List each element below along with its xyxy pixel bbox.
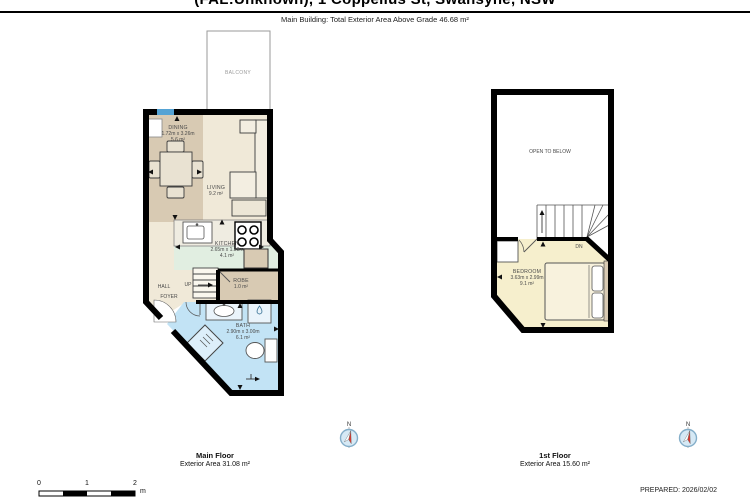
dining-label: DINING 1.72m x 3.26m 5.6 m² — [161, 126, 194, 143]
tv-bench-icon — [232, 200, 266, 216]
robe-label: ROBE 1.0 m² — [233, 279, 249, 291]
stairs-down — [537, 205, 611, 239]
floorplan-drawing: N N — [0, 0, 750, 500]
prepared-date: PREPARED: 2026/02/02 — [640, 487, 717, 494]
fridge-icon — [244, 249, 268, 268]
bed-icon — [545, 261, 609, 321]
bedroom-label: BEDROOM 3.63m x 2.99m 9.1 m² — [510, 270, 543, 287]
main-floor-plan — [146, 31, 281, 393]
window-marker — [157, 109, 174, 115]
first-floor-caption: 1st Floor Exterior Area 15.60 m² — [520, 451, 590, 468]
compass-north-label: N — [686, 422, 690, 428]
bath-vanity-icon — [206, 302, 242, 320]
compass-icon: N — [680, 422, 697, 448]
scale-bar — [39, 491, 135, 496]
open-to-below-label: OPEN TO BELOW — [529, 149, 571, 155]
floorplan-page: (FAL:Unknown), 1 Coppelius St, Swansyne,… — [0, 0, 750, 500]
balcony-label: BALCONY — [225, 70, 251, 76]
scale-tick-0: 0 — [37, 480, 41, 487]
living-label: LIVING 9.2 m² — [207, 186, 225, 198]
scale-tick-1: 1 — [85, 480, 89, 487]
kitchen-label: KITCHEN 2.65m x 1.53m 4.1 m² — [210, 242, 243, 259]
compass-icon: N — [341, 422, 358, 448]
scale-tick-2: 2 — [133, 480, 137, 487]
cabinet-icon — [148, 119, 162, 137]
hall-label: HALL — [158, 284, 171, 290]
wardrobe-icon — [497, 241, 518, 262]
kitchen-sink-icon — [183, 222, 212, 243]
bath-label: BATH 2.90m x 3.00m 6.1 m² — [226, 324, 259, 341]
stairs-up — [193, 268, 218, 298]
first-floor-plan — [494, 92, 611, 330]
foyer-label: FOYER — [160, 294, 177, 300]
robe-floor — [218, 270, 281, 302]
stairs-down-arrow — [540, 210, 545, 215]
scale-unit-label: m — [140, 488, 146, 495]
compass-north-label: N — [347, 422, 351, 428]
stairs-up-label: UP — [185, 282, 192, 288]
stairs-down-label: DN — [575, 244, 582, 250]
main-floor-caption: Main Floor Exterior Area 31.08 m² — [180, 451, 250, 468]
